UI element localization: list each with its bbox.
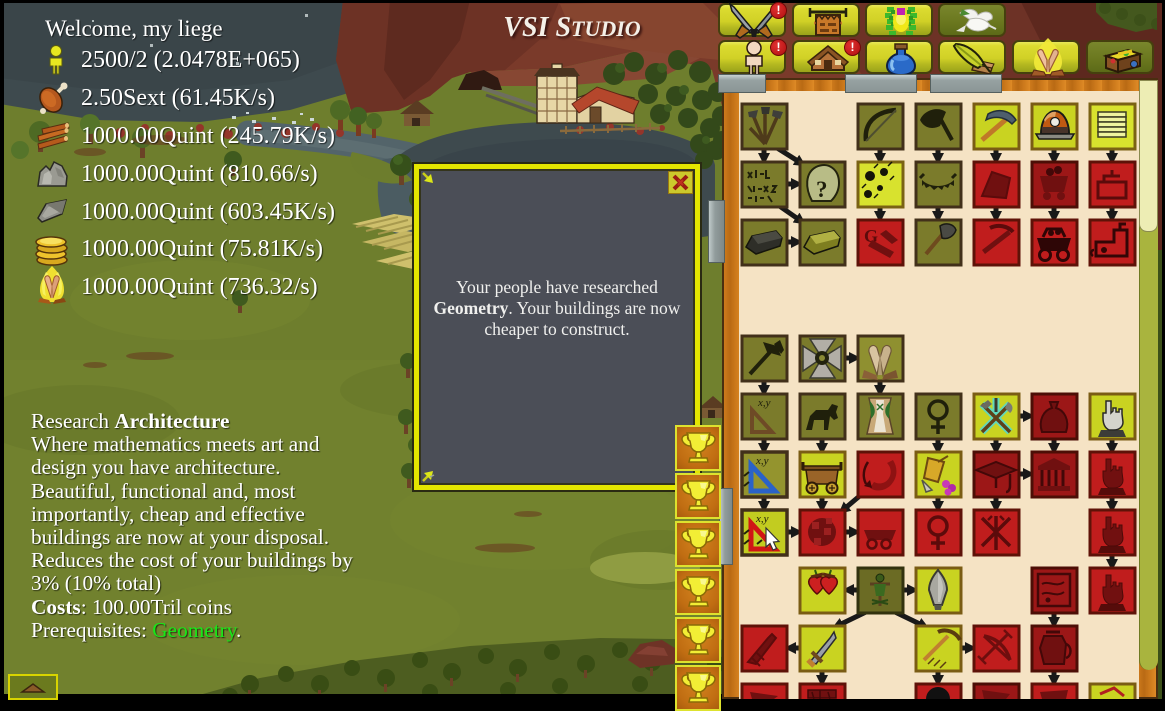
- svg-text:x,y: x,y: [755, 455, 769, 467]
- svg-text:x,y: x,y: [757, 397, 771, 409]
- svg-text:x,y: x,y: [755, 513, 769, 525]
- svg-text:?: ?: [816, 177, 828, 202]
